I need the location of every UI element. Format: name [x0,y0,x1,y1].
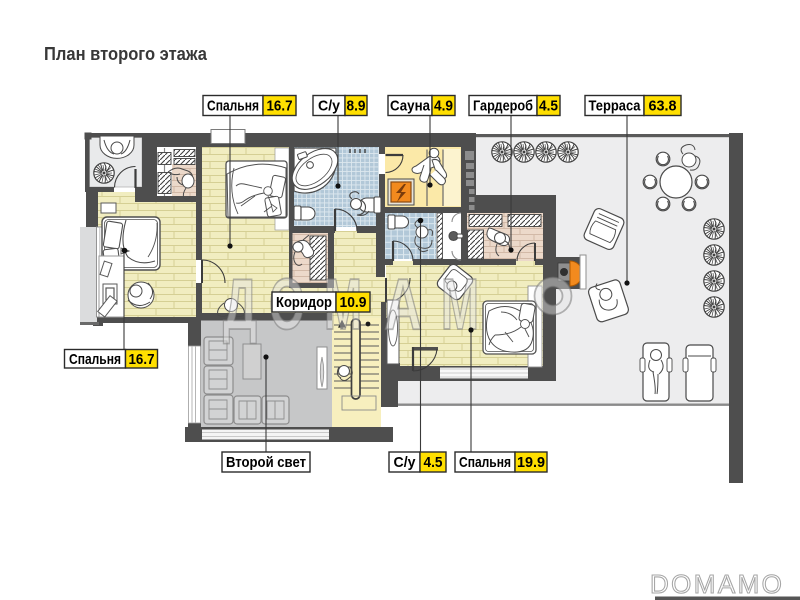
svg-text:Терраса: Терраса [589,98,642,115]
svg-text:10.9: 10.9 [340,294,367,311]
svg-text:Коридор: Коридор [276,294,332,311]
svg-text:19.9: 19.9 [517,454,545,471]
svg-text:DOMAMO: DOMAMO [650,569,784,599]
svg-text:Сауна: Сауна [390,98,431,115]
svg-text:Гардероб: Гардероб [473,98,533,115]
svg-text:Спальня: Спальня [69,351,121,368]
svg-text:63.8: 63.8 [649,98,677,115]
svg-text:16.7: 16.7 [267,98,293,115]
svg-text:4.5: 4.5 [539,98,558,115]
svg-text:Спальня: Спальня [207,98,259,115]
svg-text:С/у: С/у [394,454,417,471]
svg-text:С/у: С/у [318,98,341,115]
svg-text:8.9: 8.9 [347,98,366,115]
svg-text:Спальня: Спальня [459,454,511,471]
svg-text:М: М [441,265,479,345]
svg-text:Второй свет: Второй свет [226,454,306,471]
svg-text:4.9: 4.9 [434,98,453,115]
svg-text:16.7: 16.7 [129,351,155,368]
svg-text:А: А [384,265,422,345]
svg-text:4.5: 4.5 [424,454,443,471]
svg-text:План второго этажа: План второго этажа [44,44,208,64]
svg-text:Д: Д [223,265,257,345]
